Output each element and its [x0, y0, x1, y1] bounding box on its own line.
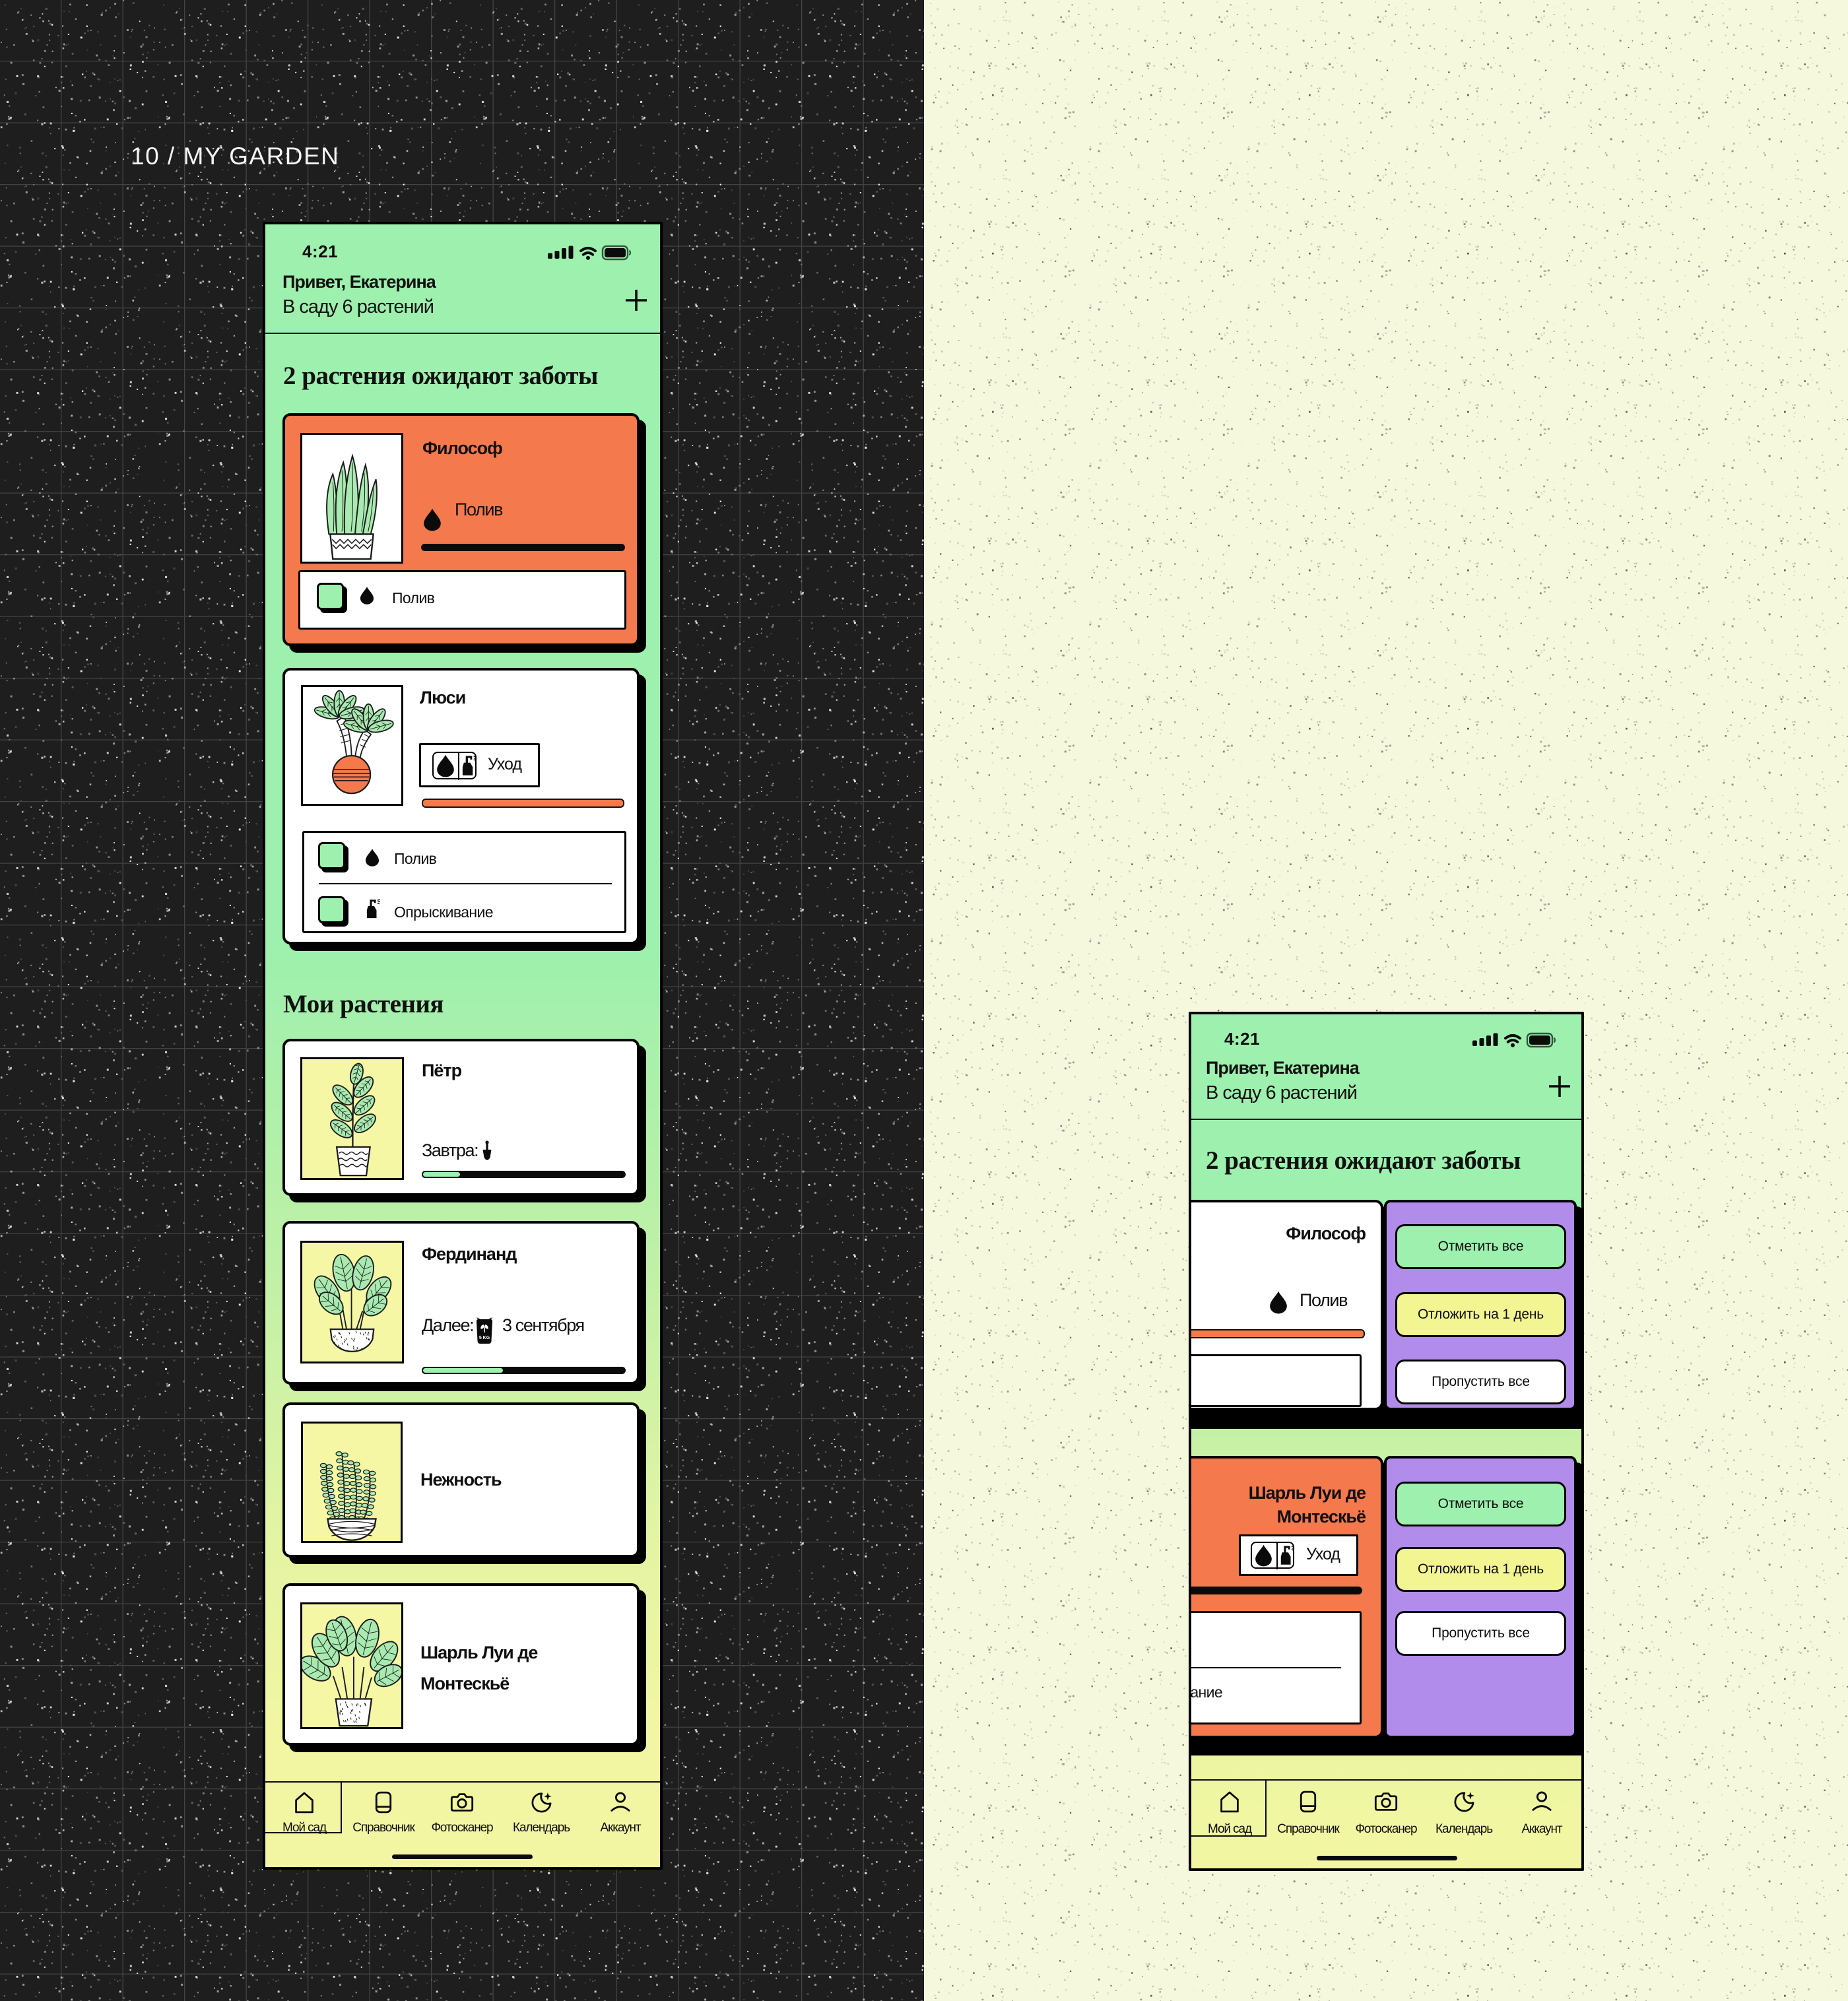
svg-text:5 KG: 5 KG — [479, 1336, 490, 1340]
